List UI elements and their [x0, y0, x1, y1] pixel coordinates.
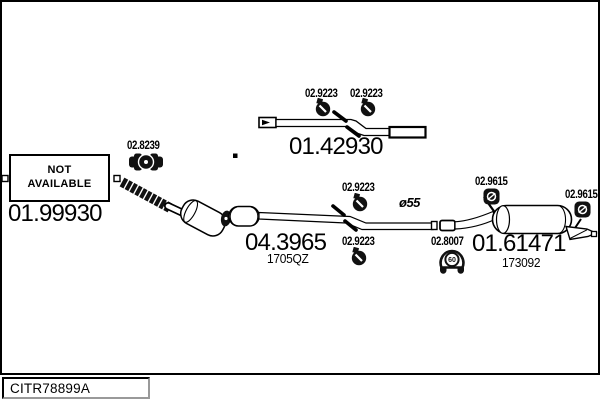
not-available-line1: NOT — [47, 164, 71, 178]
oe-ref-rear-muffler: 173092 — [502, 255, 540, 270]
part-number-center-pipe: 01.42930 — [289, 133, 383, 161]
exhaust-parts-diagram: NOT AVAILABLE 01.99930 02.8239 01.42930 … — [0, 0, 600, 400]
connector-square — [233, 154, 238, 159]
connector-square — [2, 176, 8, 182]
oe-ref-catalyst: 1705QZ — [267, 251, 309, 266]
connector-square — [592, 232, 597, 237]
part-number-rear-muffler: 01.61471 — [472, 230, 566, 258]
pipe-clamp-icon — [349, 247, 369, 267]
rubber-mount-icon: 60 — [437, 248, 467, 275]
not-available-box: NOT AVAILABLE — [9, 154, 110, 202]
pipe-diameter-note: ø55 — [399, 195, 420, 210]
pipe-clamp-icon — [358, 98, 378, 118]
drawing-code-box: CITR78899A — [2, 377, 150, 399]
part-number-mount-8007: 02.8007 — [431, 236, 464, 248]
connector-square — [114, 176, 120, 182]
mid-pipe-drawing — [259, 206, 496, 231]
rubber-hanger-icon — [574, 201, 591, 218]
catalyst-assembly-drawing — [122, 180, 259, 240]
rubber-hanger-icon — [483, 188, 500, 205]
strap-clamp-icon — [128, 151, 164, 173]
mount-icon-text: 60 — [448, 257, 456, 264]
connector-square — [432, 222, 438, 230]
clamp-position-mark — [333, 206, 344, 215]
drawing-code: CITR78899A — [10, 381, 90, 396]
not-available-line2: AVAILABLE — [27, 178, 91, 192]
part-number-hanger-front: 02.9615 — [475, 176, 508, 188]
part-number-hanger-rear: 02.9615 — [565, 189, 598, 201]
part-number-front-pipe: 01.99930 — [8, 200, 102, 228]
pipe-clamp-icon — [350, 193, 370, 213]
pipe-clamp-icon — [313, 98, 333, 118]
